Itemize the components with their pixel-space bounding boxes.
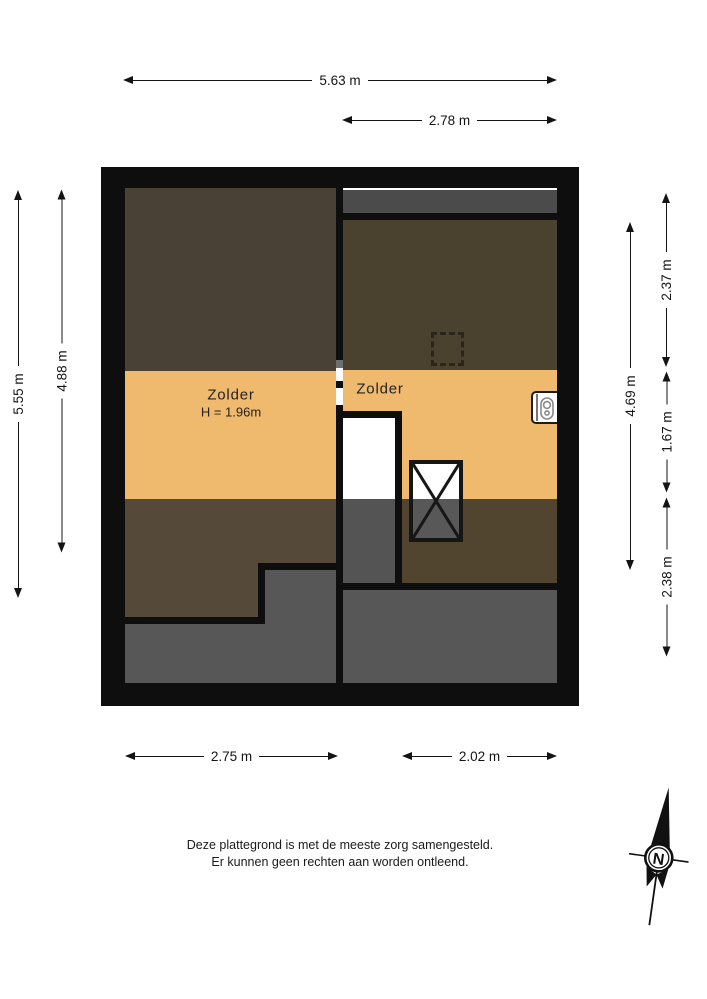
stairwell-opening [343, 418, 395, 499]
boiler-door-line [536, 394, 538, 421]
disclaimer-text: Deze plattegrond is met de meeste zorg s… [0, 837, 680, 871]
disclaimer-line-2: Er kunnen geen rechten aan worden ontlee… [0, 854, 680, 871]
dim-right-inner-total-label: 4.69 m [623, 368, 638, 423]
interior-wall [258, 563, 265, 624]
boiler-glyph-icon [539, 397, 555, 421]
arrow-left-icon [663, 483, 671, 493]
dim-right-middle: 1.67 m [660, 372, 674, 493]
stairwell-opening-shaded [343, 499, 395, 583]
dim-top-right-room: 2.78 m [342, 113, 557, 127]
arrow-left-icon [125, 752, 135, 760]
door-opening [336, 368, 343, 381]
left-room-lower-slope-step-area [258, 499, 336, 563]
room-name: Zolder [356, 381, 403, 398]
arrow-left-icon [14, 588, 22, 598]
dim-right-inner-total: 4.69 m [623, 222, 637, 570]
dim-top-total: 5.63 m [123, 73, 557, 87]
vide-cross-icon [409, 460, 463, 542]
compass-north-icon: N [615, 780, 704, 933]
dim-top-total-label: 5.63 m [312, 73, 367, 88]
arrow-right-icon [328, 752, 338, 760]
dim-right-bottom-label: 2.38 m [659, 549, 674, 604]
boiler-icon [531, 391, 557, 424]
left-room-knee-wall-area [125, 624, 265, 683]
room-height-note: H = 1.96m [201, 405, 261, 420]
dim-bottom-left-room: 2.75 m [125, 749, 338, 763]
arrow-right-icon [663, 372, 671, 382]
floorplan-interior: Zolder H = 1.96m Zolder [125, 188, 557, 683]
room-name: Zolder [201, 387, 261, 404]
arrow-left-icon [662, 357, 670, 367]
dim-left-inner: 4.88 m [55, 190, 69, 553]
arrow-left-icon [123, 76, 133, 84]
arrow-left-icon [342, 116, 352, 124]
arrow-right-icon [14, 190, 22, 200]
dim-top-right-room-label: 2.78 m [422, 113, 477, 128]
bottom-right-knee-wall-area [343, 590, 557, 683]
arrow-right-icon [547, 76, 557, 84]
left-room-knee-wall-area [265, 570, 336, 683]
dividing-wall-segment [336, 360, 343, 368]
door-opening [336, 388, 343, 405]
arrow-left-icon [402, 752, 412, 760]
compass-n-letter: N [652, 851, 666, 869]
cross-lines-icon [413, 464, 459, 538]
stairwell-wall [336, 411, 402, 418]
arrow-right-icon [662, 193, 670, 203]
dim-right-top: 2.37 m [659, 193, 673, 367]
arrow-right-icon [547, 116, 557, 124]
arrow-right-icon [58, 190, 66, 200]
stairwell-wall [395, 411, 402, 590]
dividing-wall [336, 188, 343, 683]
arrow-right-icon [626, 222, 634, 232]
floorplan-page: 5.63 m 2.78 m 5.55 m 4.88 m 4.69 m 2.37 … [0, 0, 707, 999]
interior-wall [258, 563, 336, 570]
interior-wall [343, 213, 557, 220]
dim-right-middle-label: 1.67 m [659, 404, 674, 459]
arrow-right-icon [547, 752, 557, 760]
arrow-left-icon [626, 560, 634, 570]
right-room-label: Zolder [356, 381, 403, 398]
dim-bottom-left-room-label: 2.75 m [204, 749, 259, 764]
interior-wall [125, 617, 265, 624]
left-room-sloped-ceiling-area [125, 188, 336, 371]
stairwell-wall [336, 583, 557, 590]
left-room-label: Zolder H = 1.96m [201, 387, 261, 420]
dim-left-outer: 5.55 m [11, 190, 25, 598]
left-room-lower-slope-area [125, 499, 258, 617]
disclaimer-line-1: Deze plattegrond is met de meeste zorg s… [0, 837, 680, 854]
skylight-dashed-icon [431, 332, 464, 366]
dim-bottom-right-room: 2.02 m [402, 749, 557, 763]
right-room-top-recess-area [343, 190, 557, 213]
floorplan-outer-wall: Zolder H = 1.96m Zolder [101, 167, 579, 706]
dim-bottom-right-room-label: 2.02 m [452, 749, 507, 764]
arrow-right-icon [663, 498, 671, 508]
dim-right-top-label: 2.37 m [659, 252, 674, 307]
arrow-left-icon [663, 647, 671, 657]
dim-left-inner-label: 4.88 m [54, 343, 69, 398]
arrow-left-icon [58, 543, 66, 553]
dim-right-bottom: 2.38 m [660, 498, 674, 657]
dim-left-outer-label: 5.55 m [11, 366, 26, 421]
